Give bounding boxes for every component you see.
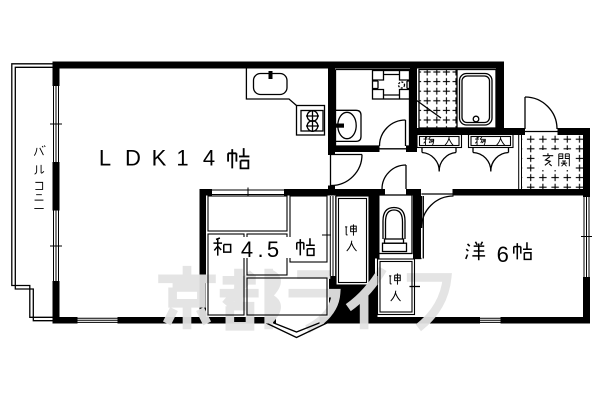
svg-text:6: 6 (497, 242, 509, 267)
svg-text:1: 1 (176, 146, 188, 171)
svg-text:5: 5 (267, 237, 279, 262)
svg-text:4: 4 (241, 237, 253, 262)
svg-text:L: L (99, 146, 111, 171)
svg-text:D: D (125, 146, 141, 171)
svg-text:4: 4 (203, 146, 215, 171)
svg-text:K: K (152, 146, 167, 171)
svg-text:.: . (257, 237, 263, 262)
